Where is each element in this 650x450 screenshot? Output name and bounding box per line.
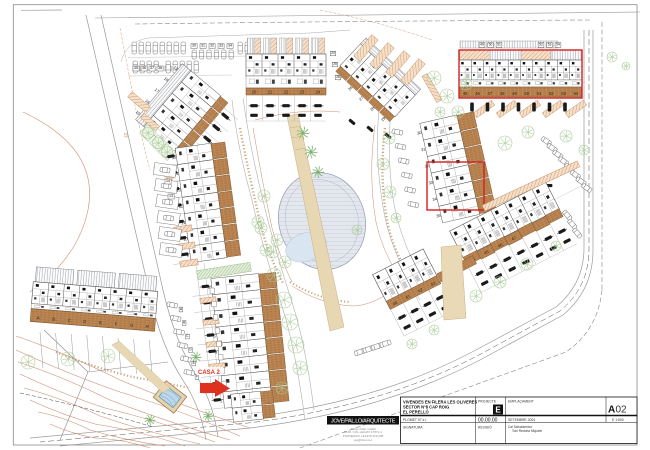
svg-text:53: 53 xyxy=(548,43,552,47)
svg-text:54: 54 xyxy=(574,91,579,96)
svg-text:46: 46 xyxy=(475,91,480,96)
svg-text:C: C xyxy=(68,318,71,323)
svg-text:G: G xyxy=(130,322,134,327)
svg-text:02: 02 xyxy=(616,405,628,416)
svg-text:52: 52 xyxy=(549,91,554,96)
svg-text:26: 26 xyxy=(336,75,340,79)
svg-text:48: 48 xyxy=(500,91,505,96)
svg-text:21: 21 xyxy=(268,90,273,95)
svg-text:H: H xyxy=(145,324,148,329)
svg-text:53: 53 xyxy=(561,91,566,96)
svg-text:45: 45 xyxy=(463,91,468,96)
svg-text:24: 24 xyxy=(331,51,335,55)
svg-text:A: A xyxy=(608,405,615,416)
svg-text:Toni Redorta Miquele: Toni Redorta Miquele xyxy=(512,429,542,433)
svg-text:37: 37 xyxy=(150,66,154,70)
svg-text:49: 49 xyxy=(480,43,484,47)
svg-text:PROJECTE: PROJECTE xyxy=(478,400,497,404)
svg-text:14: 14 xyxy=(166,179,170,183)
svg-text:23: 23 xyxy=(300,90,305,95)
svg-text:E 1:500: E 1:500 xyxy=(612,418,624,422)
svg-text:CASA 2: CASA 2 xyxy=(198,370,220,376)
svg-text:EMPLAÇAMENT: EMPLAÇAMENT xyxy=(508,400,534,404)
svg-text:32: 32 xyxy=(210,44,214,48)
svg-text:33: 33 xyxy=(219,44,223,48)
svg-text:51: 51 xyxy=(497,43,501,47)
svg-text:jav@tinet.net: jav@tinet.net xyxy=(353,438,372,442)
svg-text:51: 51 xyxy=(537,91,542,96)
svg-text:34: 34 xyxy=(228,44,232,48)
svg-text:SETEMBRE 2004: SETEMBRE 2004 xyxy=(508,418,535,422)
svg-text:PLOMET 97 s.l.: PLOMET 97 s.l. xyxy=(403,418,427,422)
svg-text:30: 30 xyxy=(192,44,196,48)
svg-text:49: 49 xyxy=(512,91,517,96)
svg-text:52: 52 xyxy=(539,43,543,47)
svg-text:JOVE/PAL.LO/ARQUITECTE: JOVE/PAL.LO/ARQUITECTE xyxy=(331,419,396,425)
svg-text:50: 50 xyxy=(524,91,529,96)
svg-text:E: E xyxy=(495,406,501,415)
svg-text:25: 25 xyxy=(333,62,337,66)
svg-text:24: 24 xyxy=(316,90,321,95)
svg-text:D: D xyxy=(83,319,86,324)
svg-text:20: 20 xyxy=(252,90,257,95)
svg-text:35: 35 xyxy=(134,66,138,70)
svg-text:38: 38 xyxy=(158,66,162,70)
svg-text:36: 36 xyxy=(142,66,146,70)
svg-text:47: 47 xyxy=(487,91,492,96)
svg-text:22: 22 xyxy=(284,90,289,95)
svg-text:EL PERELLÓ: EL PERELLÓ xyxy=(403,410,429,415)
svg-text:13: 13 xyxy=(169,194,173,198)
svg-text:50: 50 xyxy=(489,43,493,47)
svg-text:SIGNATURA: SIGNATURA xyxy=(403,426,423,430)
svg-text:54: 54 xyxy=(556,43,560,47)
svg-text:31: 31 xyxy=(201,44,205,48)
svg-text:REVISIÓ: REVISIÓ xyxy=(478,425,492,430)
svg-text:00.00.00: 00.00.00 xyxy=(478,417,498,423)
